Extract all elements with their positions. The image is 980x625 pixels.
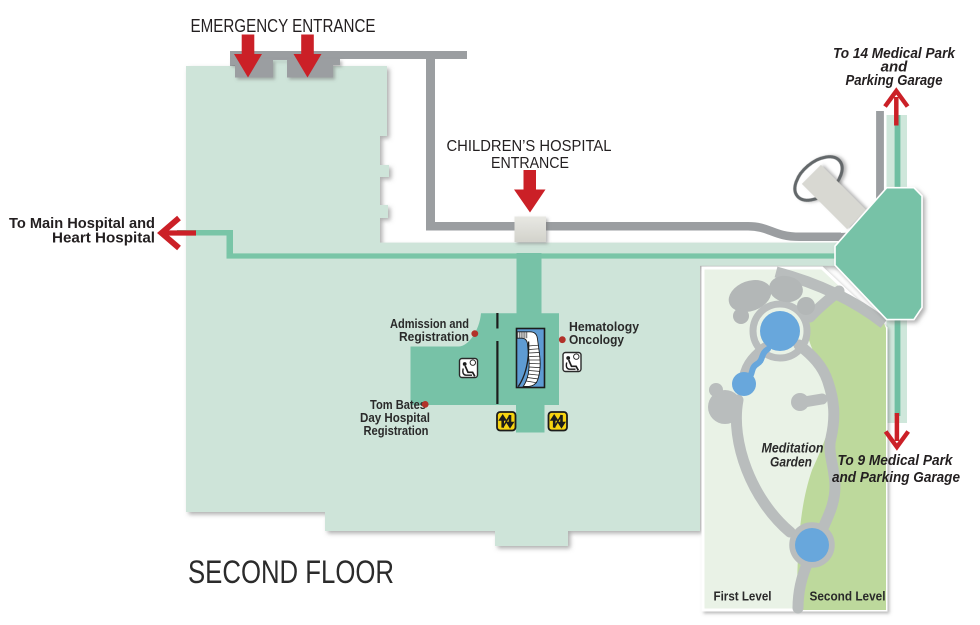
svg-text:First Level: First Level	[714, 589, 772, 604]
svg-text:EMERGENCY ENTRANCE: EMERGENCY ENTRANCE	[191, 16, 376, 36]
svg-text:Garden: Garden	[770, 455, 812, 470]
svg-text:CHILDREN’S HOSPITAL: CHILDREN’S HOSPITAL	[447, 138, 612, 155]
svg-text:and Parking Garage: and Parking Garage	[832, 469, 960, 486]
svg-text:Admission and: Admission and	[390, 317, 469, 331]
svg-text:Tom Bates: Tom Bates	[370, 398, 426, 412]
svg-text:Parking Garage: Parking Garage	[846, 72, 943, 89]
svg-text:Registration: Registration	[399, 330, 469, 344]
svg-text:Meditation: Meditation	[762, 441, 824, 456]
svg-text:Hematology: Hematology	[569, 320, 639, 334]
svg-text:To 9 Medical Park: To 9 Medical Park	[838, 452, 954, 469]
svg-text:Heart Hospital: Heart Hospital	[52, 231, 155, 247]
svg-text:ENTRANCE: ENTRANCE	[491, 155, 569, 172]
svg-text:Oncology: Oncology	[569, 333, 624, 347]
svg-text:Day Hospital: Day Hospital	[360, 411, 430, 425]
svg-text:Second Level: Second Level	[810, 589, 886, 604]
svg-text:Registration: Registration	[364, 424, 429, 438]
svg-text:SECOND FLOOR: SECOND FLOOR	[188, 554, 394, 590]
